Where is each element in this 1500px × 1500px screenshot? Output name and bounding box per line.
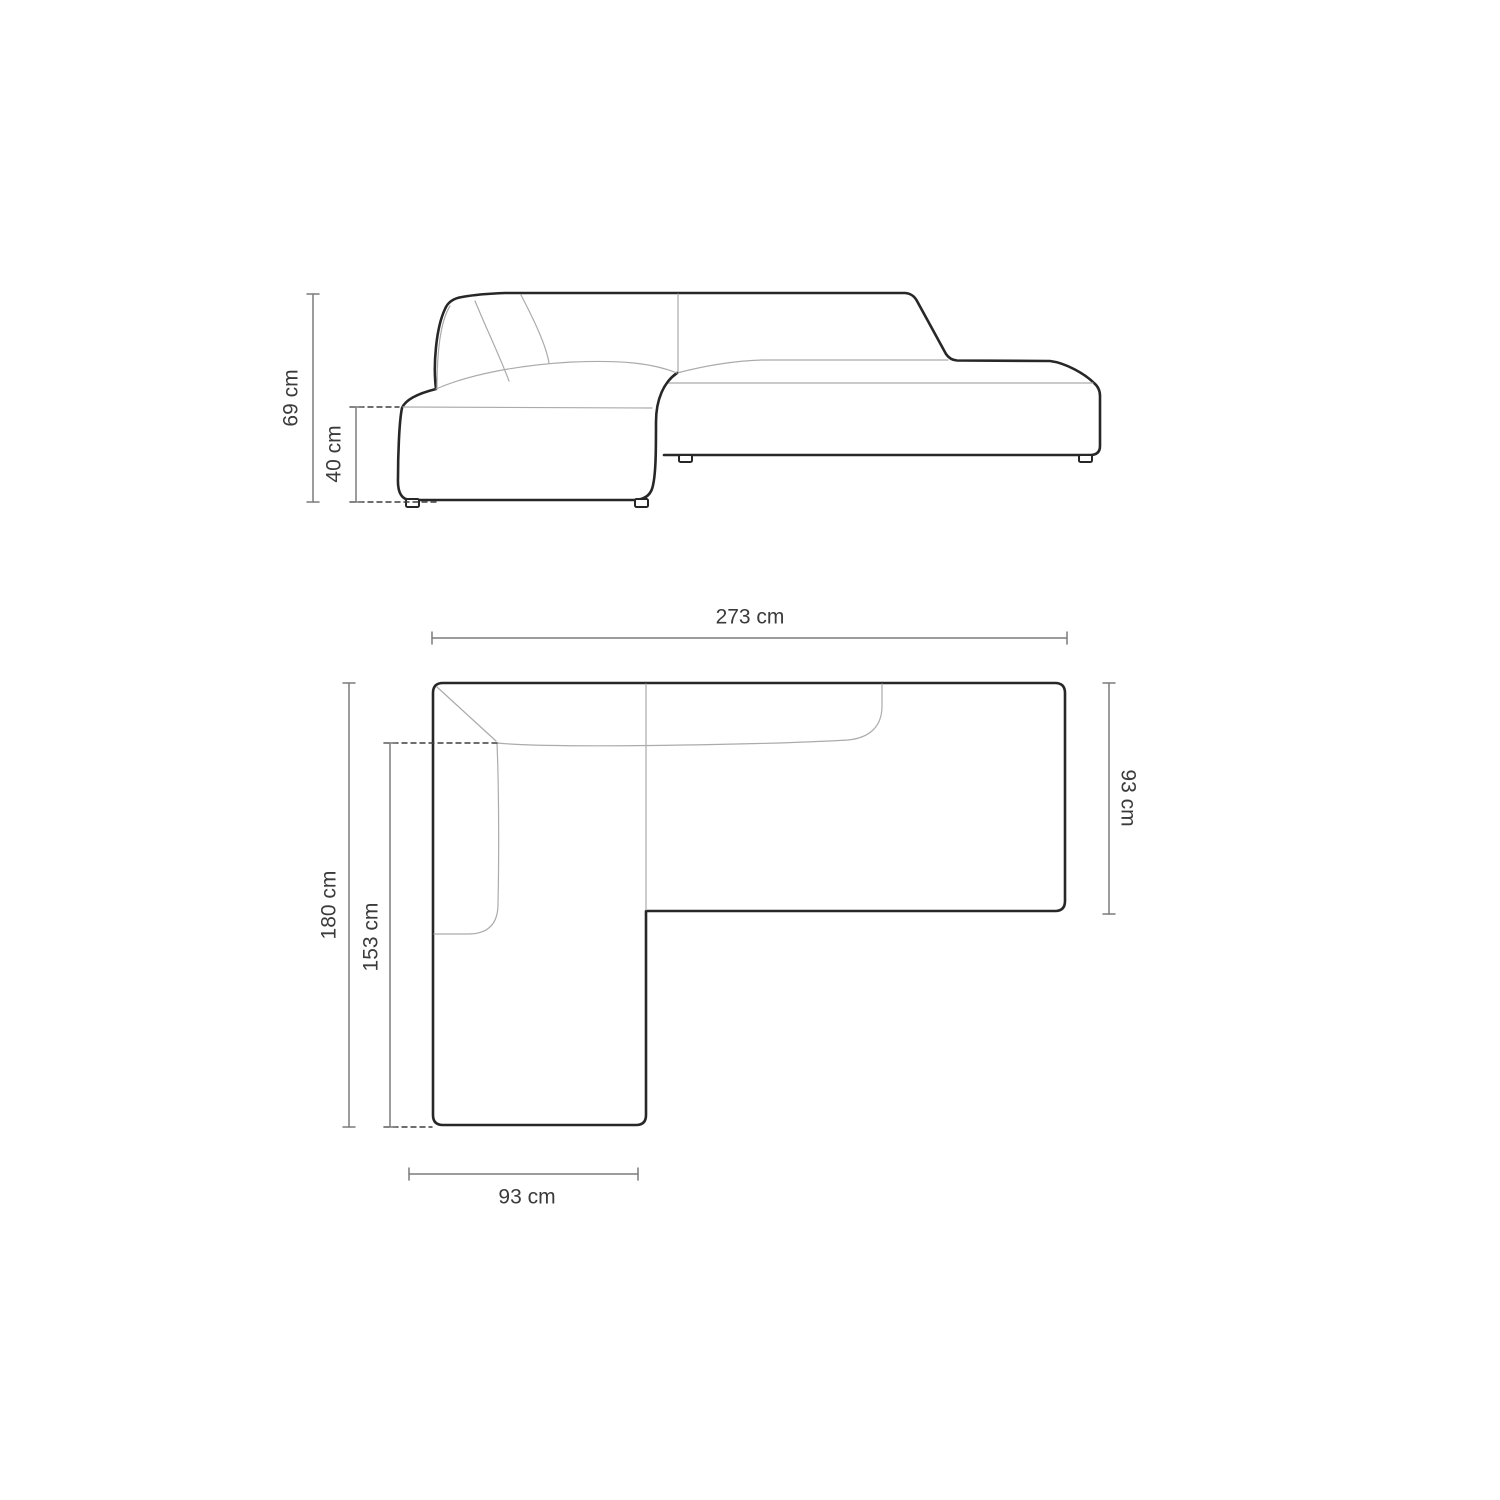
dim-label-seat-height: 40 cm	[324, 425, 345, 482]
sofa-dimension-diagram: 69 cm 40 cm 273 cm 180 cm 153 cm 93 cm 9…	[0, 0, 1500, 1500]
sofa-top-view	[343, 632, 1115, 1180]
dim-line-total-height	[307, 294, 319, 502]
dim-line-body-depth	[1103, 683, 1115, 914]
dim-label-chaise-depth: 153 cm	[361, 903, 382, 972]
dim-line-total-width	[432, 632, 1067, 644]
dim-label-total-height: 69 cm	[281, 369, 302, 426]
sofa-side-view	[307, 293, 1100, 507]
dim-line-chaise-width	[409, 1168, 638, 1180]
dim-line-chaise-depth	[384, 743, 396, 1127]
sofa-drawings	[0, 0, 1500, 1500]
dim-label-body-depth: 93 cm	[1118, 769, 1139, 826]
side-view-chaise-outline	[398, 373, 677, 500]
dim-label-total-width: 273 cm	[716, 607, 785, 628]
top-view-outline	[433, 683, 1065, 1125]
dim-label-chaise-width: 93 cm	[498, 1187, 555, 1208]
dim-label-total-depth: 180 cm	[319, 871, 340, 940]
dim-line-seat-height	[350, 407, 362, 502]
dim-line-total-depth	[343, 683, 355, 1127]
